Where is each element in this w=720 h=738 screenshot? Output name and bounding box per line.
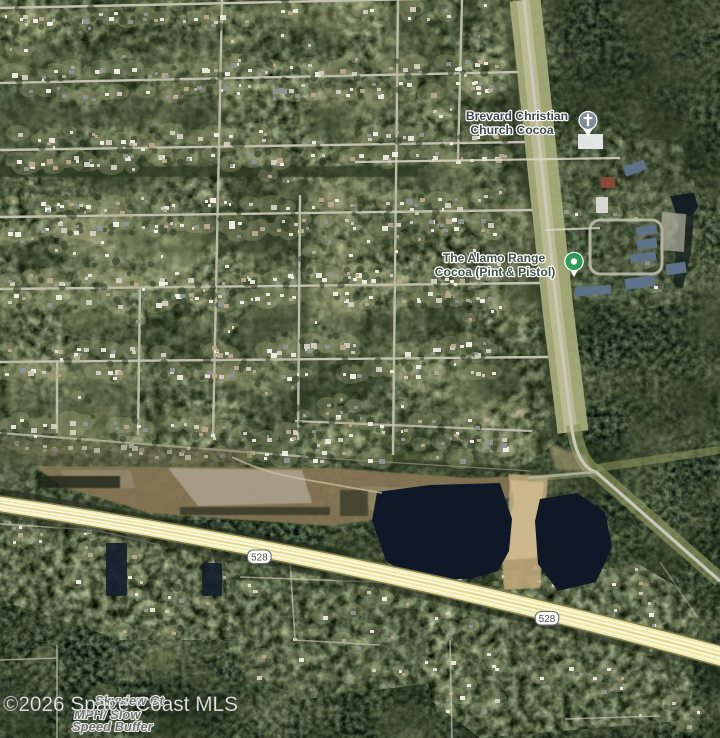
- svg-text:Brevard Christian: Brevard Christian: [466, 109, 568, 123]
- svg-text:Cocoa (Pint & Pistol): Cocoa (Pint & Pistol): [435, 265, 556, 279]
- svg-text:The Alamo Range: The Alamo Range: [443, 251, 546, 265]
- svg-text:Church Cocoa: Church Cocoa: [470, 123, 554, 137]
- svg-text:©2026 Space Coast MLS: ©2026 Space Coast MLS: [3, 693, 238, 716]
- svg-text:528: 528: [251, 552, 268, 563]
- svg-text:Speed Buffer: Speed Buffer: [72, 719, 154, 734]
- svg-text:528: 528: [539, 614, 556, 625]
